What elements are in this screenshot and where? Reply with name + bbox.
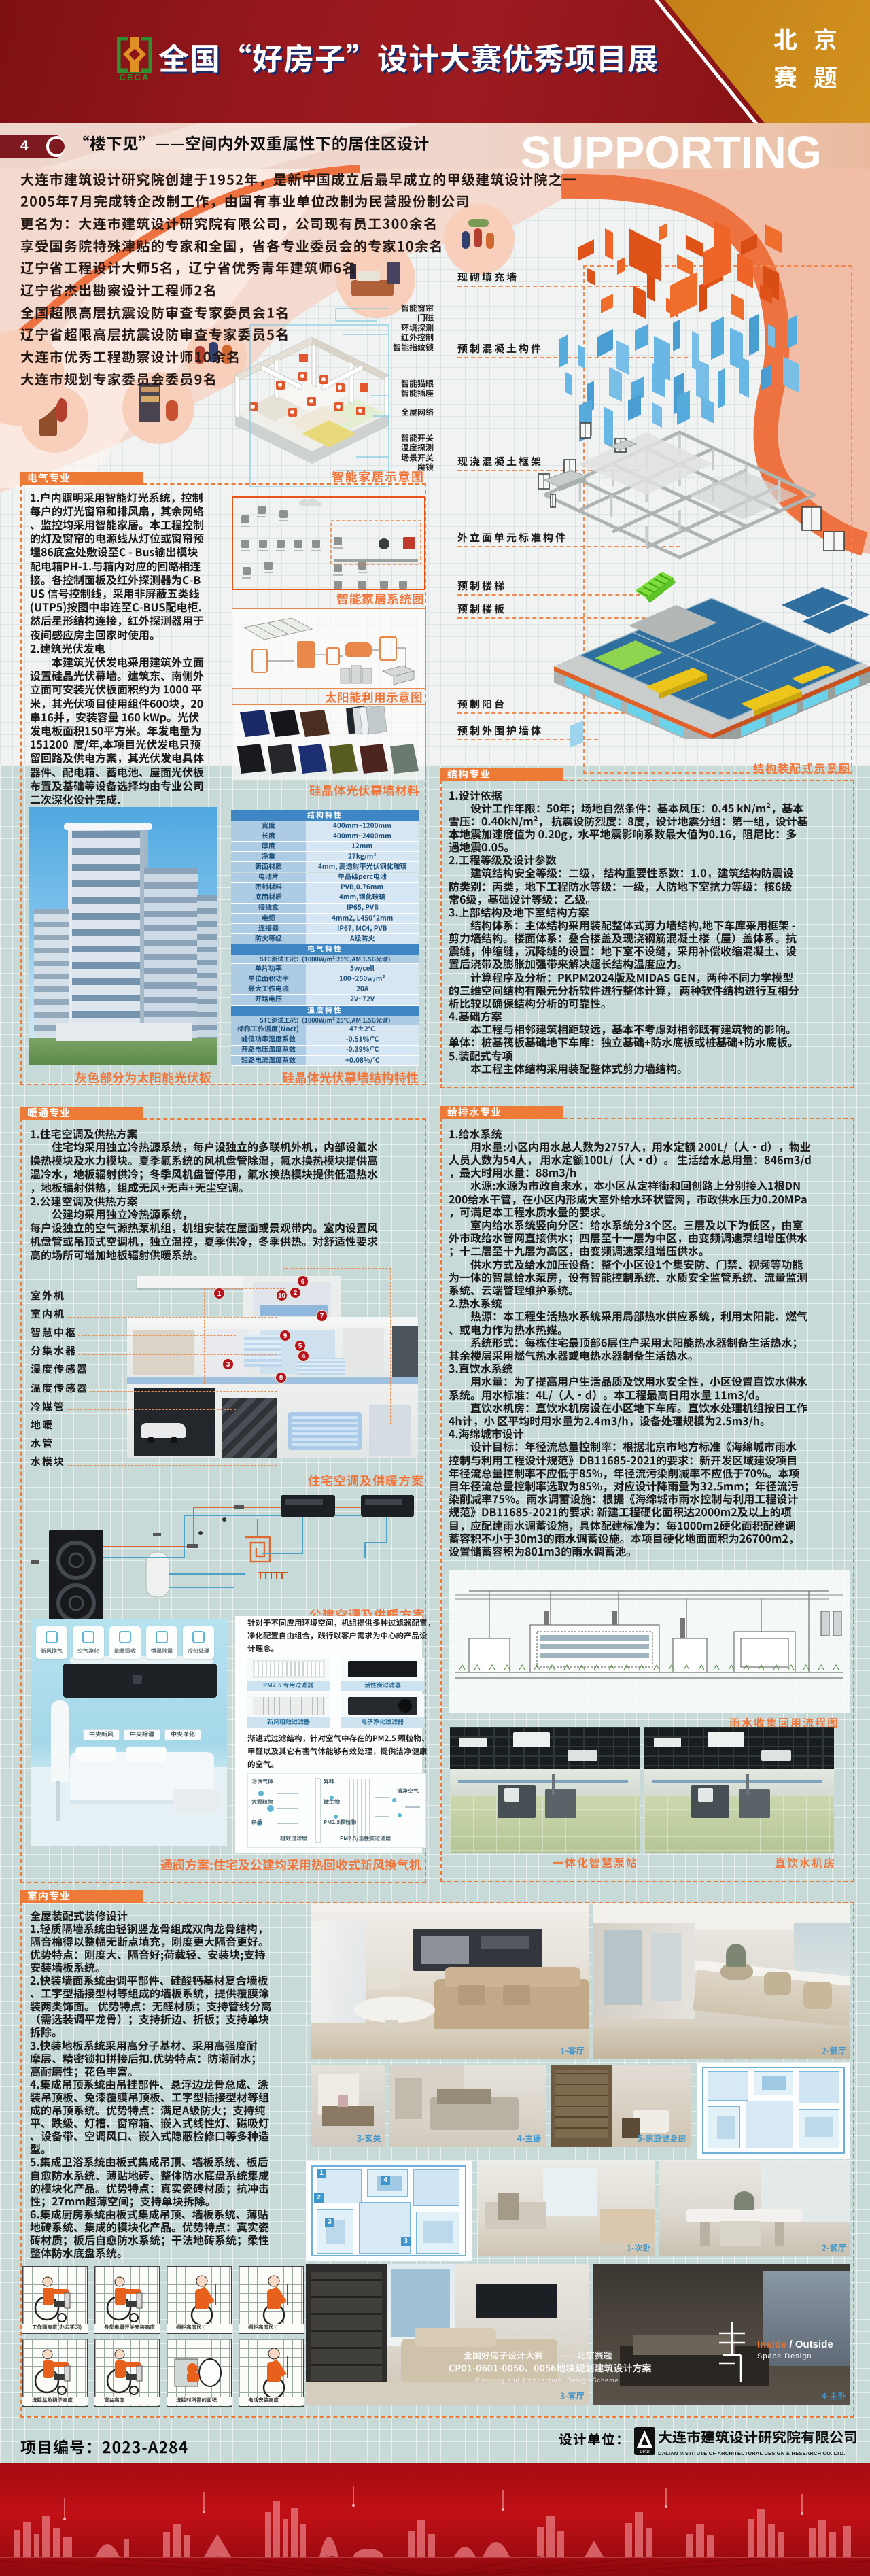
svg-text:DIAD: DIAD xyxy=(640,2450,650,2454)
